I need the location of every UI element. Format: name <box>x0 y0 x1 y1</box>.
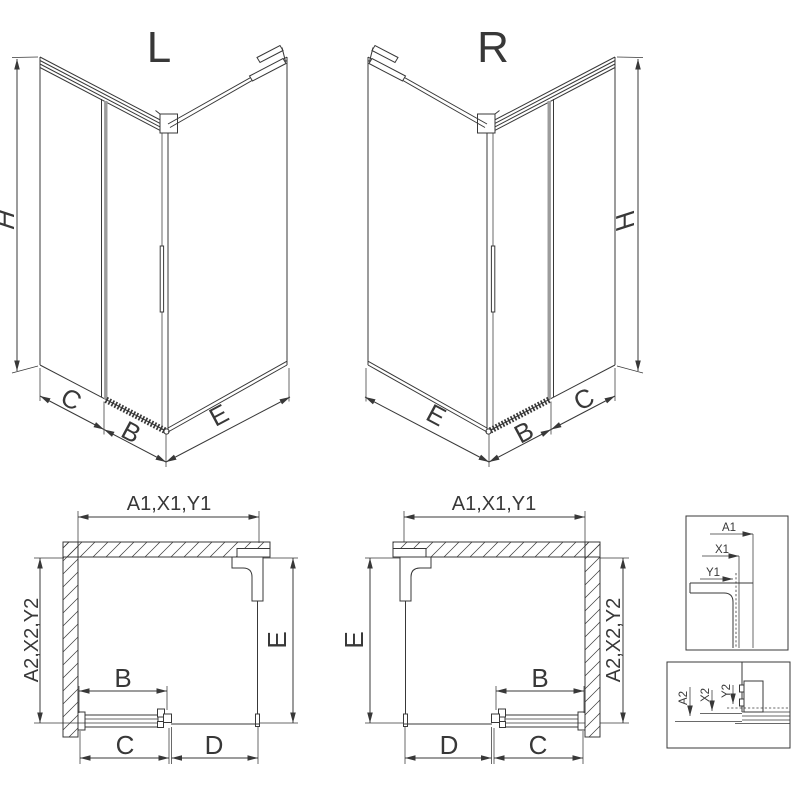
plan-left-d-label: D <box>205 730 224 760</box>
bracket-notch-r <box>393 549 426 558</box>
iso-right-labels: R H E B C <box>422 23 640 449</box>
detail-box-bottom: A2 X2 Y2 <box>667 662 790 748</box>
door-panel-bar <box>85 715 158 727</box>
plan-right-geometry <box>365 511 629 764</box>
wall-mount-cap <box>78 712 85 730</box>
detail-roller-housing <box>744 681 763 712</box>
dim-label-c-right: C <box>568 381 599 416</box>
iso-left-geometry <box>12 46 290 468</box>
corner-profile <box>232 557 263 601</box>
plan-left-c-label: C <box>116 730 135 760</box>
detail-roller-notch-b <box>740 699 745 706</box>
plan-right-top-label: A1,X1,Y1 <box>452 493 537 515</box>
technical-drawing-sheet: L H C B E R H E B C <box>0 0 800 800</box>
detail-roller-notch-a <box>740 685 745 692</box>
wall-bracket-bar <box>250 59 287 82</box>
plan-left-geometry <box>34 511 298 764</box>
wall-band-right-r <box>585 542 600 737</box>
side-panel-foot <box>256 714 260 727</box>
dim-line-e <box>166 397 290 462</box>
left-panel-outline <box>40 57 168 432</box>
dim-label-e-left: E <box>204 398 233 433</box>
roller-carriage-c <box>158 722 164 728</box>
plan-right-e-label: E <box>339 631 369 648</box>
door-handle <box>160 246 163 312</box>
dim-label-b-left: B <box>117 415 146 450</box>
detail-y2-label: Y2 <box>721 684 733 698</box>
right-panel-outline <box>168 57 287 432</box>
plan-right-b-label: B <box>531 663 548 693</box>
detail-x2-label: X2 <box>700 688 712 702</box>
plan-left-e-label: E <box>262 631 292 648</box>
corner-profile-r <box>400 557 431 601</box>
plan-right-c-label: C <box>529 730 548 760</box>
dim-label-b-right: B <box>509 415 538 450</box>
detail-a2-label: A2 <box>678 691 690 705</box>
plan-left-top-label: A1,X1,Y1 <box>127 493 212 515</box>
wall-band-left <box>63 542 78 737</box>
iso-left-labels: L H C B E <box>0 23 233 449</box>
detail-rail-lines <box>735 712 790 724</box>
wall-bracket-hook <box>257 46 283 63</box>
detail-y1-label: Y1 <box>706 567 720 579</box>
detail-top-profile <box>690 583 753 648</box>
dim-label-e-right: E <box>422 398 451 433</box>
corner-block-bevel <box>156 111 161 115</box>
iso-right-geometry <box>365 46 643 468</box>
view-title-left: L <box>147 23 171 72</box>
detail-x1-label: X1 <box>715 544 729 556</box>
detail-a1-label: A1 <box>722 522 736 534</box>
plan-right-side-label: A2,X2,Y2 <box>603 598 625 683</box>
view-title-right: R <box>477 23 509 72</box>
plan-left-b-label: B <box>114 663 131 693</box>
plan-right-d-label: D <box>440 730 459 760</box>
roller-carriage-b <box>164 714 172 723</box>
dim-label-c-left: C <box>56 381 87 416</box>
plan-left-side-label: A2,X2,Y2 <box>21 598 43 683</box>
dim-ext-top <box>78 511 259 543</box>
detail-box-top: A1 X1 Y1 <box>686 516 788 650</box>
bracket-notch <box>237 549 270 558</box>
